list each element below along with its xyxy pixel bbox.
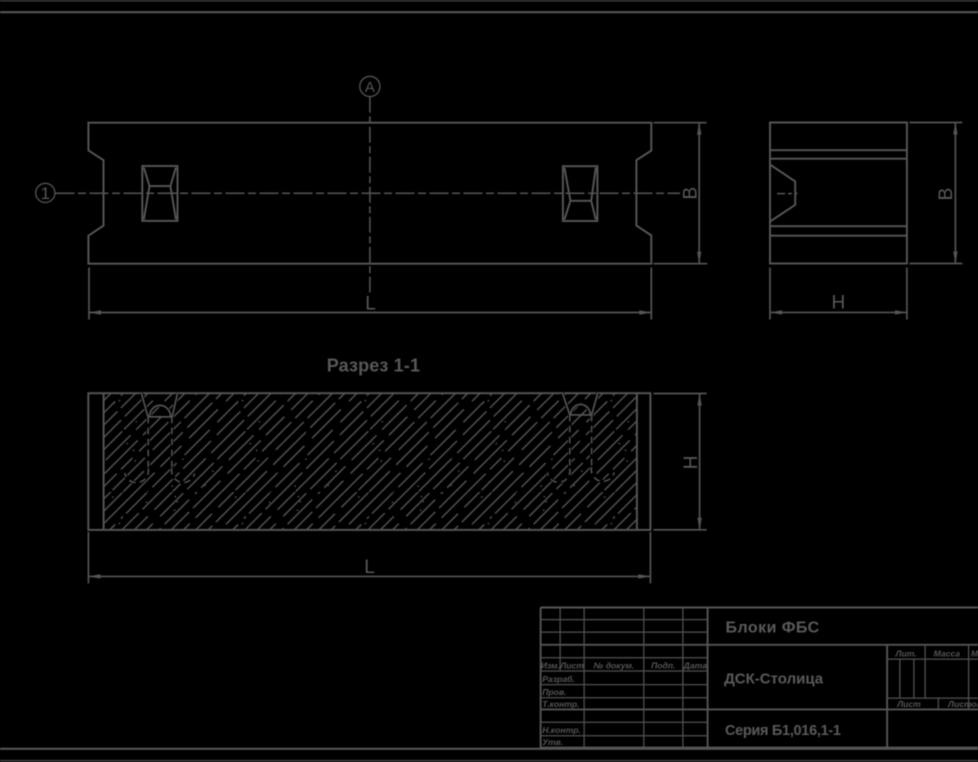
svg-text:А: А <box>365 79 375 96</box>
svg-text:Разраб.: Разраб. <box>542 674 575 684</box>
svg-text:Лист: Лист <box>559 660 584 670</box>
svg-text:Пров.: Пров. <box>542 687 566 697</box>
svg-text:Изм.: Изм. <box>541 660 560 670</box>
svg-text:L: L <box>364 557 375 578</box>
svg-text:Т.контр.: Т.контр. <box>542 699 579 709</box>
svg-text:L: L <box>365 294 376 315</box>
svg-text:Дата: Дата <box>682 660 707 670</box>
svg-text:Серия Б1,016,1-1: Серия Б1,016,1-1 <box>725 723 841 739</box>
svg-text:Разрез 1-1: Разрез 1-1 <box>327 355 420 375</box>
svg-text:1: 1 <box>41 184 50 203</box>
svg-text:Масса: Масса <box>934 648 961 658</box>
svg-text:Н: Н <box>681 456 702 470</box>
svg-text:№ докум.: № докум. <box>594 660 635 670</box>
svg-text:Лист: Лист <box>896 699 921 709</box>
svg-text:ДСК-Столица: ДСК-Столица <box>724 670 824 687</box>
svg-text:Блоки ФБС: Блоки ФБС <box>726 620 820 637</box>
svg-text:Утв.: Утв. <box>542 737 563 747</box>
svg-text:B: B <box>680 187 701 200</box>
svg-text:Подп.: Подп. <box>651 660 675 670</box>
svg-text:Н.контр.: Н.контр. <box>542 725 581 735</box>
svg-text:H: H <box>832 292 846 313</box>
svg-text:Лит.: Лит. <box>895 648 917 658</box>
svg-text:B: B <box>936 188 957 201</box>
svg-text:Масштаб: Масштаб <box>971 648 978 658</box>
svg-text:Листов: Листов <box>947 699 978 709</box>
